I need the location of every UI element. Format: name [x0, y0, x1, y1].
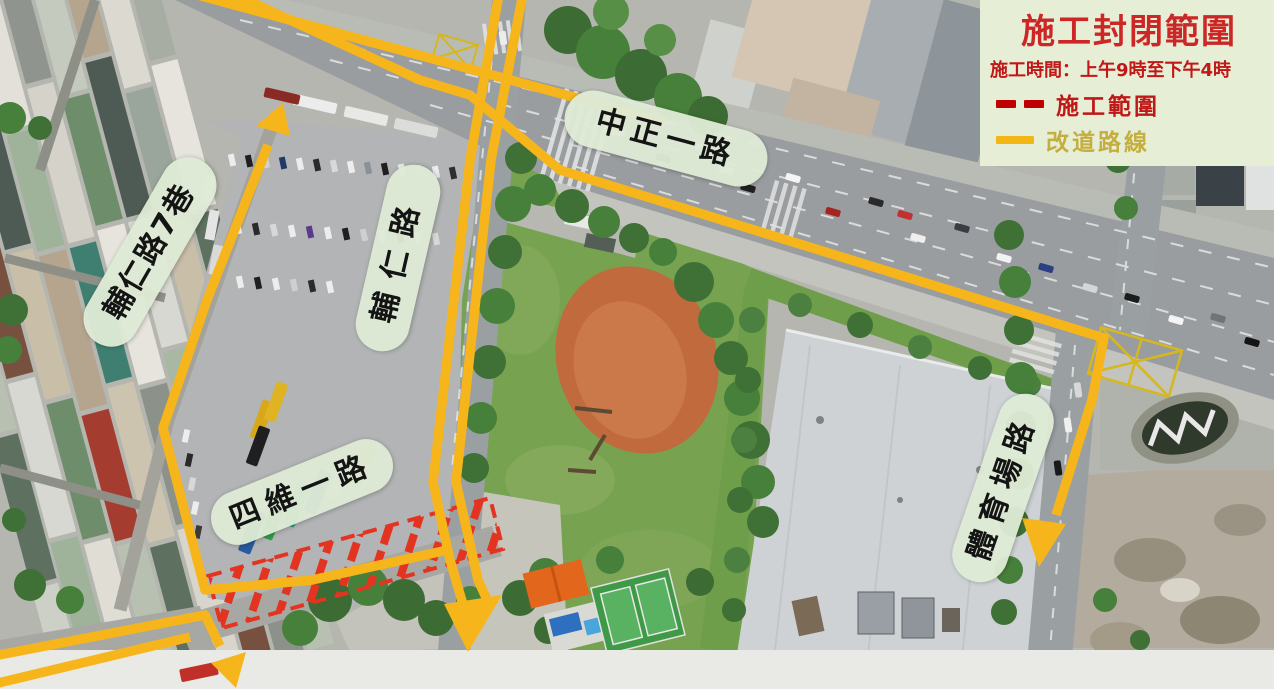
construction-closure-map: 中正一路 輔仁路 輔仁路7巷 四維一路 體育場路 施工封閉範圍 施工時間：上午9…	[0, 0, 1274, 689]
yellow-line-swatch-icon	[996, 136, 1034, 144]
legend-item-closure: 施工範圍	[996, 90, 1268, 118]
legend-subtitle: 施工時間：上午9時至下午4時	[990, 56, 1268, 82]
legend-panel: 施工封閉範圍 施工時間：上午9時至下午4時 施工範圍 改道路線	[980, 0, 1274, 166]
legend-item-label: 施工範圍	[1056, 87, 1160, 121]
legend-title: 施工封閉範圍	[990, 4, 1268, 53]
legend-item-label: 改道路線	[1046, 123, 1150, 157]
red-dashed-swatch-icon	[996, 100, 1044, 108]
legend-item-detour: 改道路線	[996, 126, 1268, 154]
